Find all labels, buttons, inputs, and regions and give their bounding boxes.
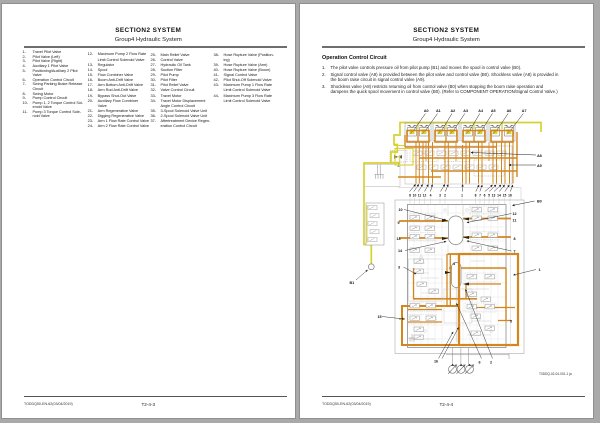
svg-text:5: 5 [510, 320, 512, 324]
svg-text:16: 16 [508, 194, 512, 198]
svg-text:A7: A7 [522, 109, 527, 113]
svg-text:A2: A2 [451, 109, 456, 113]
svg-text:10: 10 [399, 208, 403, 212]
svg-text:2: 2 [490, 361, 492, 365]
svg-text:8: 8 [514, 237, 516, 241]
svg-text:A9: A9 [537, 164, 542, 168]
svg-text:7: 7 [479, 194, 481, 198]
svg-text:3: 3 [439, 194, 441, 198]
svg-text:16: 16 [434, 360, 438, 364]
svg-text:A0: A0 [424, 109, 429, 113]
svg-text:12: 12 [513, 212, 517, 216]
svg-text:15: 15 [378, 315, 382, 319]
svg-text:A6: A6 [507, 109, 512, 113]
svg-text:9: 9 [398, 221, 400, 225]
svg-text:6: 6 [484, 194, 486, 198]
svg-text:7: 7 [514, 250, 516, 254]
svg-text:A5: A5 [491, 109, 496, 113]
svg-text:12: 12 [423, 194, 427, 198]
svg-text:1: 1 [461, 194, 463, 198]
svg-text:11: 11 [513, 219, 517, 223]
svg-text:B0: B0 [537, 200, 542, 204]
svg-text:B1: B1 [350, 281, 355, 285]
svg-text:A8: A8 [537, 154, 542, 158]
svg-text:6: 6 [479, 361, 481, 365]
svg-text:4: 4 [430, 194, 432, 198]
svg-text:11: 11 [418, 194, 422, 198]
svg-text:8: 8 [409, 194, 411, 198]
svg-text:5: 5 [488, 194, 490, 198]
svg-text:13: 13 [492, 194, 496, 198]
svg-text:8: 8 [475, 194, 477, 198]
svg-text:3: 3 [398, 266, 400, 270]
svg-text:A4: A4 [478, 109, 484, 113]
svg-text:14: 14 [497, 194, 501, 198]
svg-text:15: 15 [503, 194, 507, 198]
svg-text:T0DDQ-02-04-001-1 ja: T0DDQ-02-04-001-1 ja [539, 372, 572, 376]
svg-text:13: 13 [397, 237, 401, 241]
svg-text:1: 1 [539, 268, 541, 272]
svg-text:10: 10 [413, 194, 417, 198]
svg-text:A3: A3 [463, 109, 468, 113]
svg-text:2: 2 [444, 194, 446, 198]
svg-text:14: 14 [398, 249, 403, 253]
svg-text:A1: A1 [436, 109, 441, 113]
